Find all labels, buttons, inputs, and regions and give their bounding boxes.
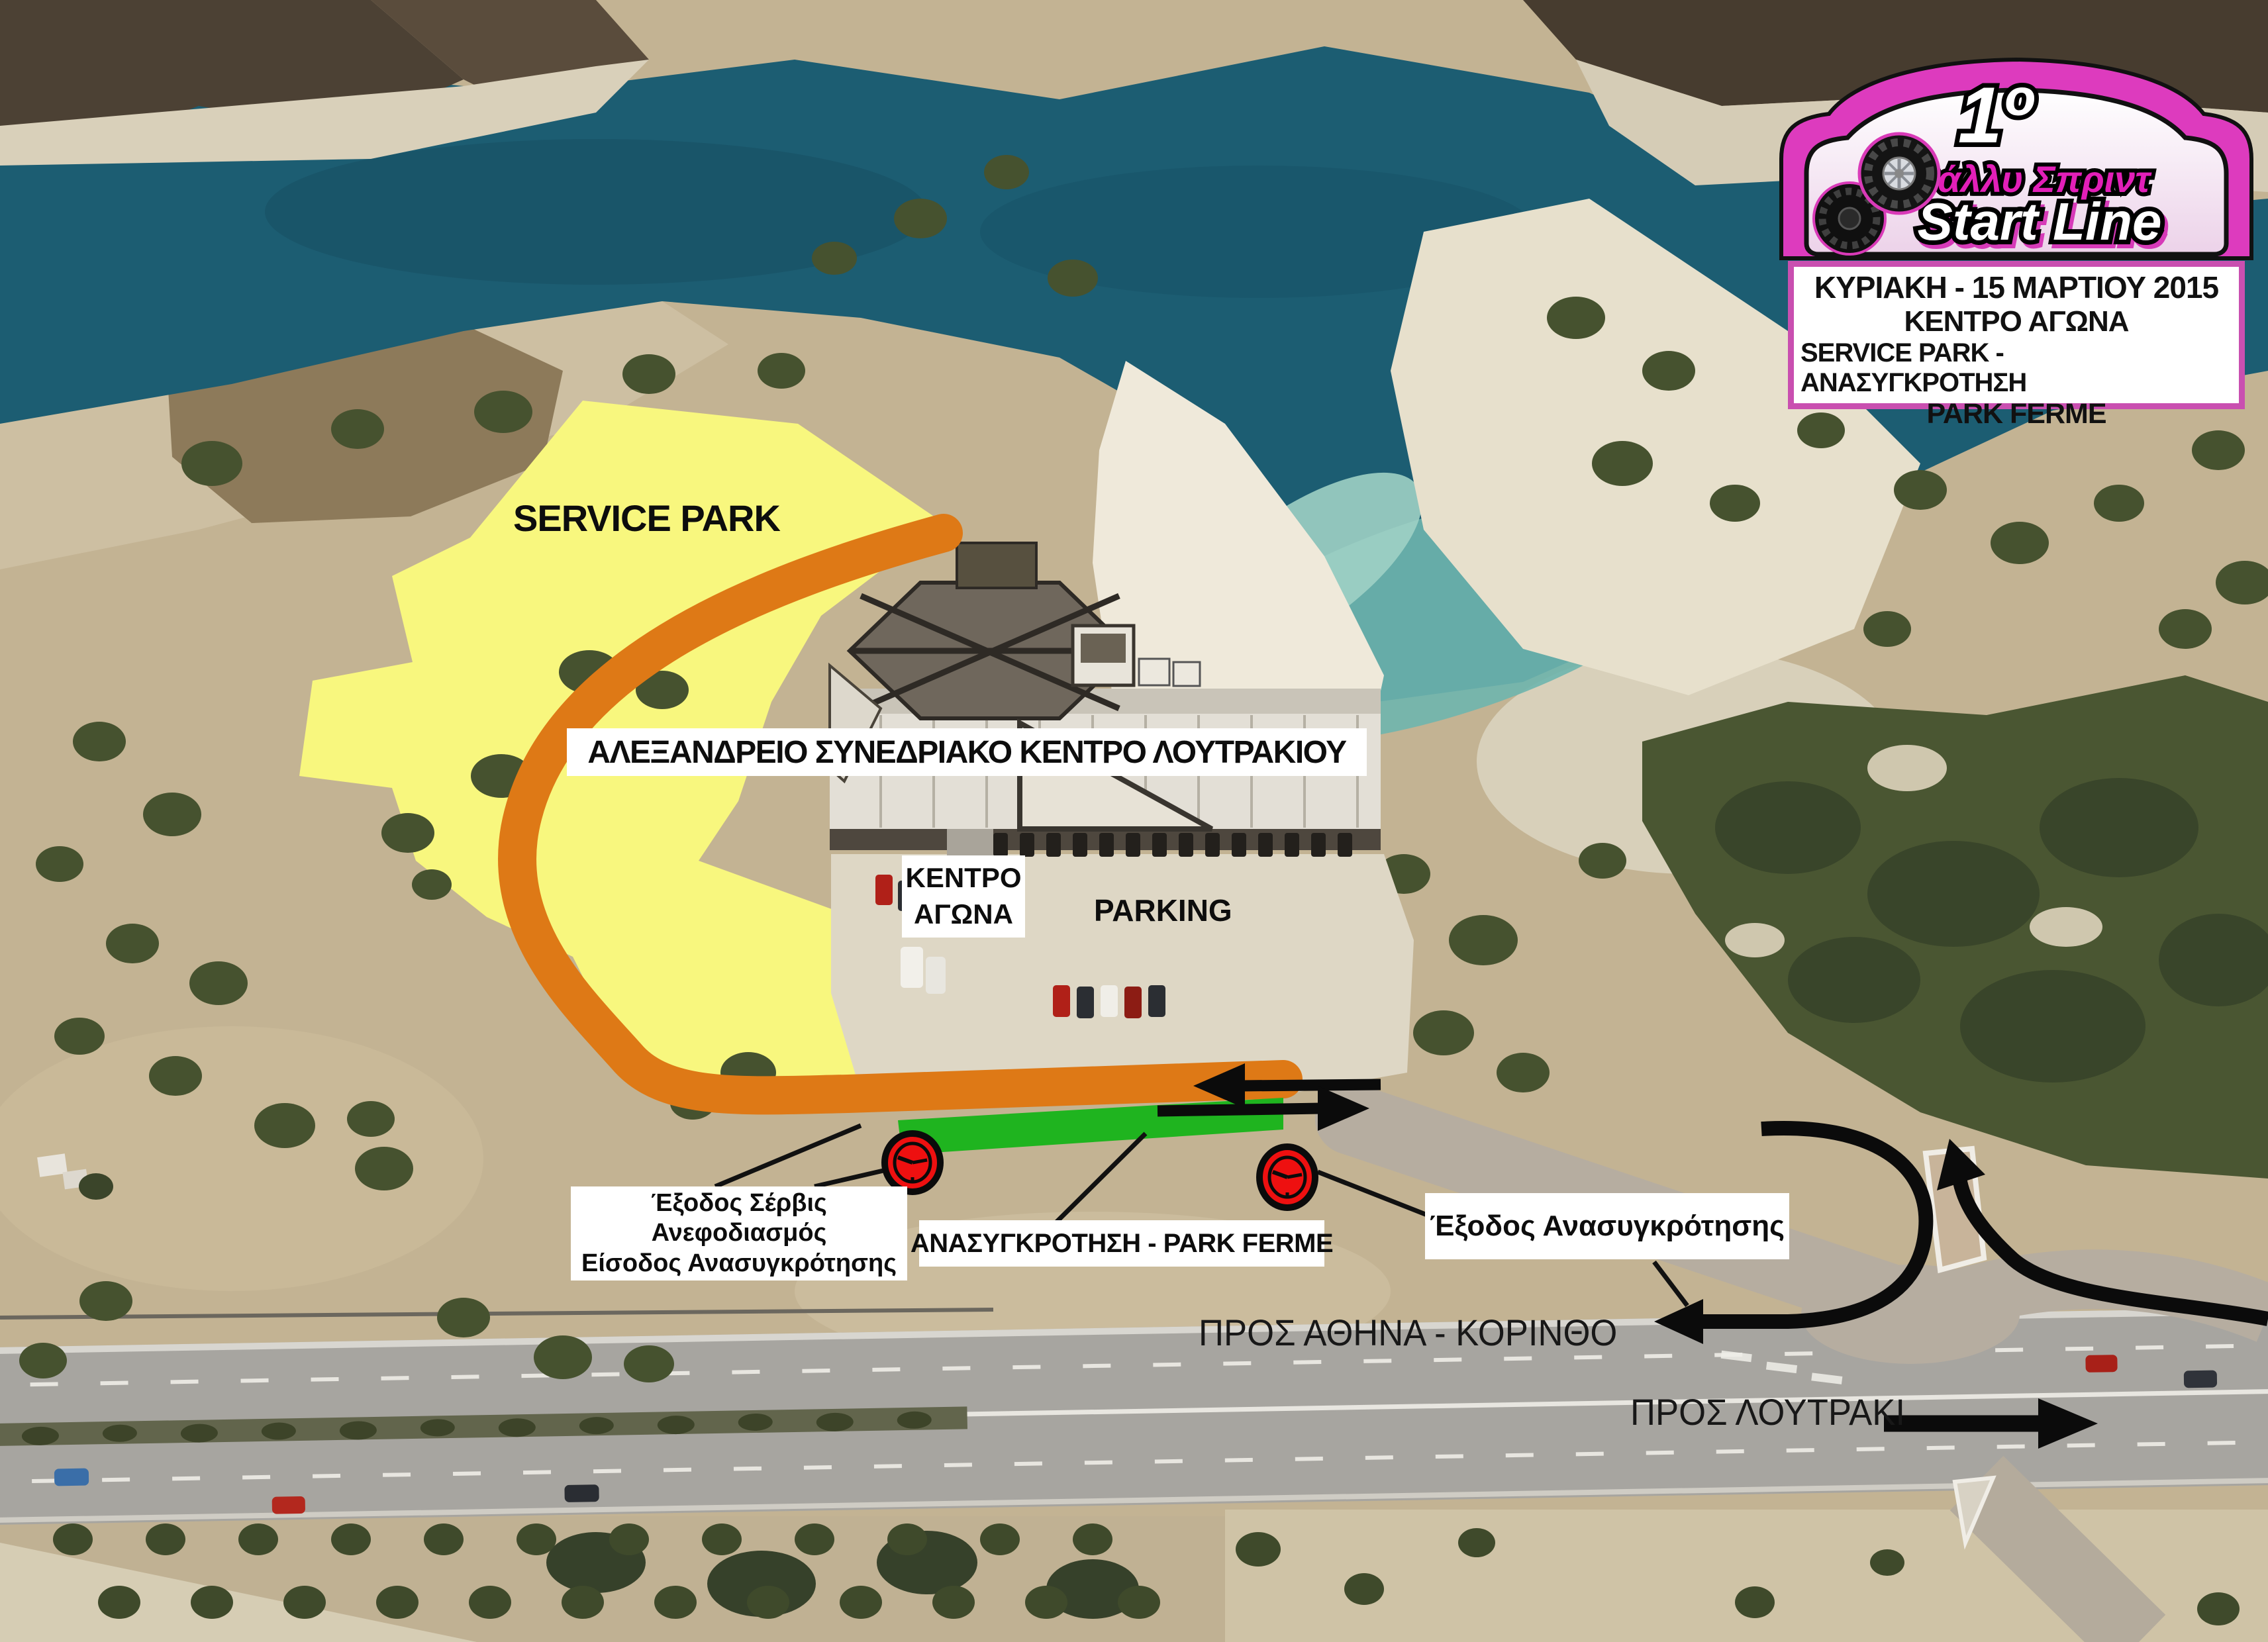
plate-main-title: Start Line: [1918, 192, 2162, 251]
service-park-label: SERVICE PARK: [513, 497, 780, 540]
venue-label: ΑΛΕΞΑΝΔΡΕΙΟ ΣΥΝΕΔΡΙΑΚΟ ΚΕΝΤΡΟ ΛΟΥΤΡΑΚΙΟΥ: [567, 728, 1367, 776]
venue-label-text: ΑΛΕΞΑΝΔΡΕΙΟ ΣΥΝΕΔΡΙΑΚΟ ΚΕΝΤΡΟ ΛΟΥΤΡΑΚΙΟΥ: [587, 734, 1346, 771]
satellite-map-canvas: 1º Ράλλυ Σπριντ Start Line: [0, 0, 2268, 1642]
race-hq-line1: ΚΕΝΤΡΟ: [905, 860, 1021, 896]
race-hq-label: ΚΕΝΤΡΟ ΑΓΩΝΑ: [902, 855, 1025, 938]
to-athens-label: ΠΡΟΣ ΑΘΗΝΑ - ΚΟΡΙΝΘΟ: [1199, 1311, 1617, 1354]
service-exit-line3: Είσοδος Ανασυγκρότησης: [581, 1249, 897, 1279]
to-loutraki-label: ΠΡΟΣ ΛΟΥΤΡΑΚΙ: [1630, 1390, 1905, 1433]
event-date: ΚΥΡΙΑΚΗ - 15 ΜΑΡΤΙΟΥ 2015: [1814, 269, 2218, 305]
rally-service-park-map: 1º Ράλλυ Σπριντ Start Line SERVICE PARK …: [0, 0, 2268, 1642]
service-exit-line2: Ανεφοδιασμός: [652, 1218, 827, 1249]
plate-number: 1º: [1958, 71, 2035, 160]
service-exit-label: Έξοδος Σέρβις Ανεφοδιασμός Είσοδος Ανασυ…: [571, 1186, 907, 1280]
race-hq-line2: ΑΓΩΝΑ: [914, 896, 1013, 933]
service-exit-line1: Έξοδος Σέρβις: [651, 1188, 827, 1219]
info-service-park: SERVICE PARK - ΑΝΑΣΥΓΚΡΟΤΗΣΗ: [1800, 338, 2232, 398]
regroup-label: ΑΝΑΣΥΓΚΡΟΤΗΣΗ - PARK FERME: [919, 1220, 1324, 1267]
regroup-exit-label-text: Έξοδος Ανασυγκρότησης: [1430, 1210, 1785, 1243]
event-info-box: ΚΥΡΙΑΚΗ - 15 ΜΑΡΤΙΟΥ 2015 ΚΕΝΤΡΟ ΑΓΩΝΑ S…: [1788, 261, 2245, 409]
parking-label: PARKING: [1094, 893, 1232, 928]
info-race-hq: ΚΕΝΤΡΟ ΑΓΩΝΑ: [1904, 305, 2129, 338]
info-parc-ferme: PARK FERME: [1926, 398, 2106, 430]
time-control-marker-out: [1259, 1147, 1315, 1208]
regroup-label-text: ΑΝΑΣΥΓΚΡΟΤΗΣΗ - PARK FERME: [911, 1229, 1333, 1259]
regroup-exit-label: Έξοδος Ανασυγκρότησης: [1425, 1193, 1789, 1259]
time-control-marker-in: [885, 1134, 940, 1192]
